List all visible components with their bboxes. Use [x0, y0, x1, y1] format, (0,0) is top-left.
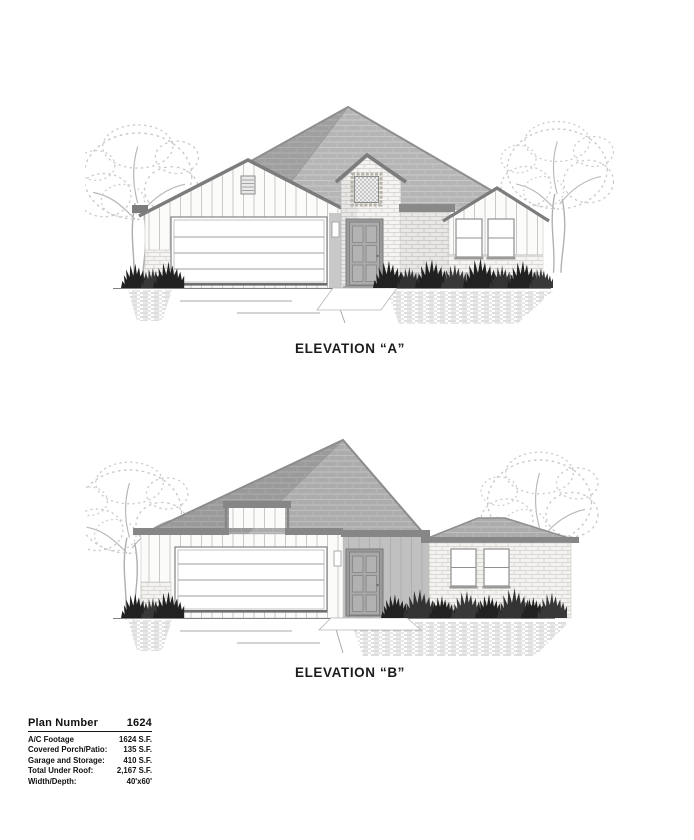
window: [455, 219, 484, 260]
elevation-b-label: ELEVATION “B”: [85, 665, 615, 680]
spec-row-value: 410 S.F.: [123, 756, 152, 766]
spec-row-value: 135 S.F.: [123, 745, 152, 755]
gable-vent-icon: [241, 176, 255, 194]
spec-row-label: Total Under Roof:: [28, 766, 93, 776]
window: [450, 549, 478, 589]
spec-row: Width/Depth:40'x60': [28, 777, 152, 787]
spec-table-rows: A/C Footage1624 S.F.Covered Porch/Patio:…: [28, 735, 152, 787]
spec-row-value: 2,167 S.F.: [117, 766, 152, 776]
plan-sheet: ELEVATION “A”: [0, 0, 694, 840]
porch-light-icon: [332, 222, 339, 237]
entry-walkway: [319, 618, 421, 630]
elevation-a-drawing: [85, 92, 615, 332]
spec-row: A/C Footage1624 S.F.: [28, 735, 152, 745]
elevation-b-drawing: [85, 422, 615, 662]
entry-door: [346, 549, 383, 616]
ground: [113, 618, 569, 656]
spec-row: Covered Porch/Patio:135 S.F.: [28, 745, 152, 755]
elevation-a-label: ELEVATION “A”: [85, 341, 615, 356]
garage-door: [171, 217, 327, 286]
ground: [113, 288, 553, 324]
porch-light-icon: [334, 551, 341, 566]
window: [487, 219, 516, 260]
spec-row-label: Garage and Storage:: [28, 756, 105, 766]
spec-table-title: Plan Number: [28, 717, 98, 729]
spec-row-label: Covered Porch/Patio:: [28, 745, 107, 755]
spec-row-label: A/C Footage: [28, 735, 74, 745]
spec-row: Total Under Roof:2,167 S.F.: [28, 766, 152, 776]
garage-door: [175, 547, 327, 613]
spec-table-plan-number: 1624: [127, 717, 152, 729]
entry-walkway: [317, 288, 397, 310]
door-knob-icon: [376, 584, 378, 586]
spec-row: Garage and Storage:410 S.F.: [28, 756, 152, 766]
entry-porch: [329, 213, 341, 288]
window: [483, 549, 511, 589]
transom-window: [352, 174, 381, 205]
door-knob-icon: [376, 255, 378, 257]
spec-table-header: Plan Number 1624: [28, 717, 152, 732]
spec-table: Plan Number 1624 A/C Footage1624 S.F.Cov…: [28, 717, 152, 787]
spec-row-value: 1624 S.F.: [119, 735, 152, 745]
spec-row-value: 40'x60': [127, 777, 152, 787]
spec-row-label: Width/Depth:: [28, 777, 76, 787]
entry-tower: [336, 155, 406, 288]
